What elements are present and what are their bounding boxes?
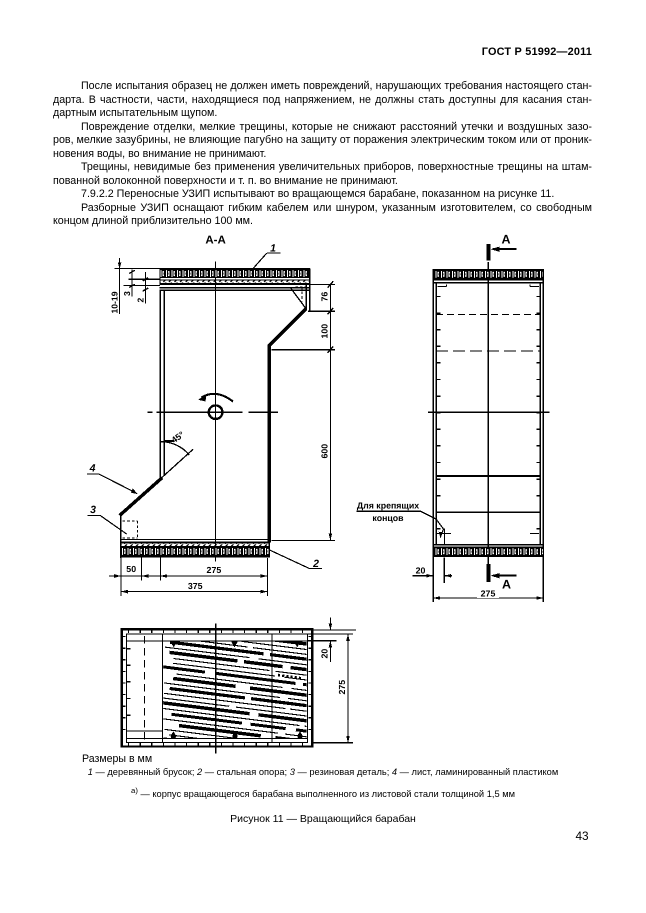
svg-text:375: 375	[188, 581, 203, 591]
svg-text:600: 600	[319, 444, 329, 459]
svg-text:3: 3	[90, 504, 96, 516]
svg-text:275: 275	[337, 680, 347, 695]
svg-text:концов: концов	[372, 513, 404, 523]
svg-text:3: 3	[122, 291, 132, 296]
svg-text:76: 76	[319, 292, 329, 302]
svg-text:2: 2	[136, 298, 146, 303]
svg-text:20: 20	[319, 649, 329, 659]
svg-text:А: А	[501, 233, 510, 247]
svg-text:А: А	[502, 578, 511, 592]
svg-text:275: 275	[481, 589, 496, 599]
svg-text:20: 20	[416, 565, 426, 575]
svg-text:275: 275	[207, 565, 222, 575]
svg-text:50: 50	[126, 564, 136, 574]
svg-text:4: 4	[89, 463, 96, 475]
svg-text:А-А: А-А	[205, 235, 225, 247]
svg-text:100: 100	[319, 324, 329, 339]
svg-text:Для крепящих: Для крепящих	[357, 501, 419, 511]
svg-text:10-19: 10-19	[110, 291, 120, 313]
